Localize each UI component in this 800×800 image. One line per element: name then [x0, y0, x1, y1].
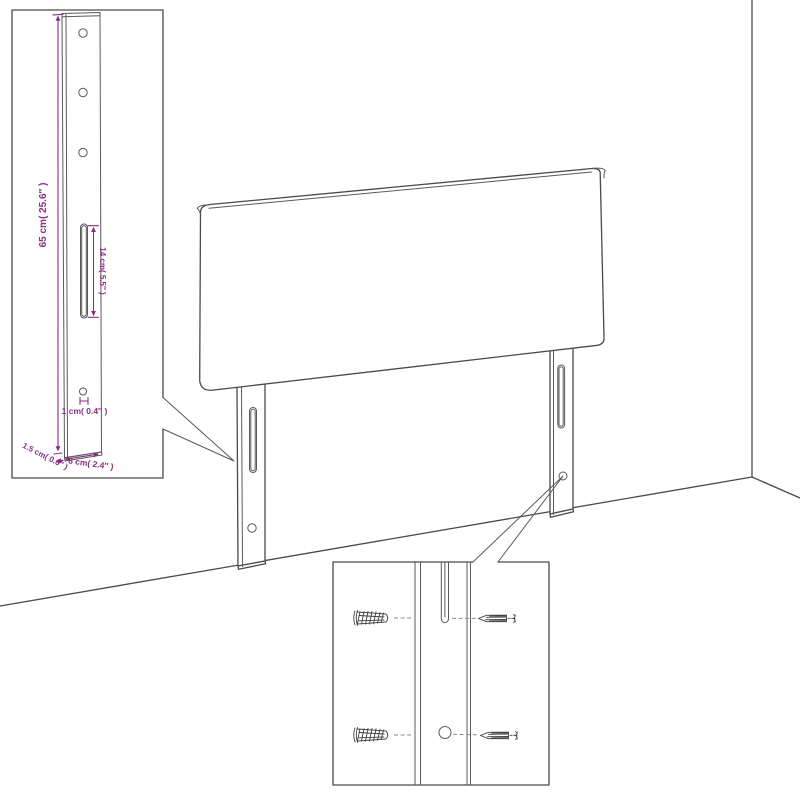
dim-tick-65cm-top [53, 14, 63, 15]
callout-tail-bottom [473, 476, 563, 562]
label-1cm: 1 cm( 0.4″ ) [62, 406, 108, 416]
detail-inset-mounting [333, 562, 549, 785]
diagram-canvas: 65 cm( 25.6″ ) 14 cm( 5.5″ ) 1 cm( 0.4″ … [0, 0, 800, 800]
left-leg [237, 383, 266, 569]
panel-face [200, 168, 604, 390]
label-14cm: 14 cm( 5.5″ ) [98, 247, 107, 295]
headboard-assembly-diagram: 65 cm( 25.6″ ) 14 cm( 5.5″ ) 1 cm( 0.4″ … [0, 0, 800, 800]
right-leg [550, 344, 574, 517]
floor-line-right [752, 477, 800, 498]
detail-inset-leg: 65 cm( 25.6″ ) 14 cm( 5.5″ ) 1 cm( 0.4″ … [12, 10, 163, 478]
callout-tail-left [163, 398, 234, 462]
headboard-panel [197, 168, 605, 390]
label-65cm: 65 cm( 25.6″ ) [38, 183, 49, 248]
